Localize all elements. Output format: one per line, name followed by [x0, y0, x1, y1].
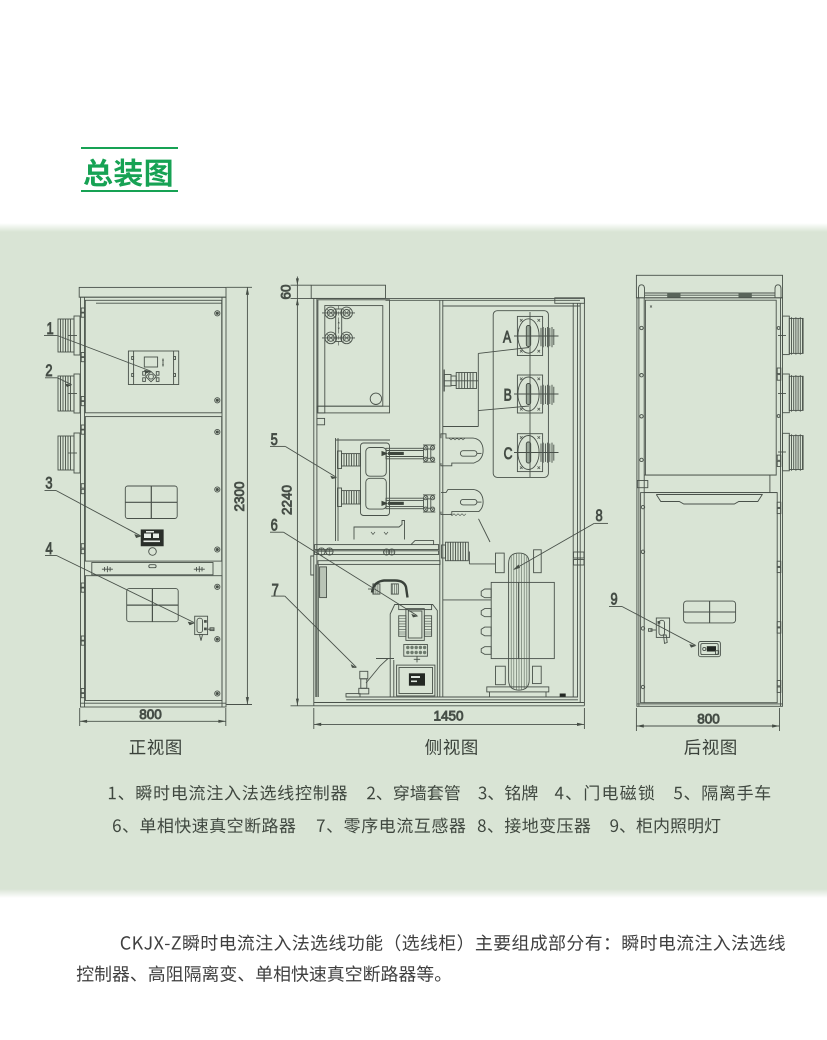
svg-text:1450: 1450 — [433, 709, 463, 724]
svg-text:800: 800 — [139, 707, 162, 722]
svg-text:A: A — [503, 329, 511, 347]
svg-text:C: C — [504, 445, 513, 463]
svg-text:B: B — [504, 387, 512, 405]
svg-text:800: 800 — [697, 712, 720, 727]
svg-text:2300: 2300 — [232, 481, 247, 511]
svg-text:60: 60 — [279, 284, 294, 299]
svg-text:5: 5 — [271, 432, 278, 450]
svg-text:8: 8 — [596, 508, 603, 526]
svg-text:2240: 2240 — [280, 485, 295, 515]
svg-text:7: 7 — [272, 582, 279, 600]
